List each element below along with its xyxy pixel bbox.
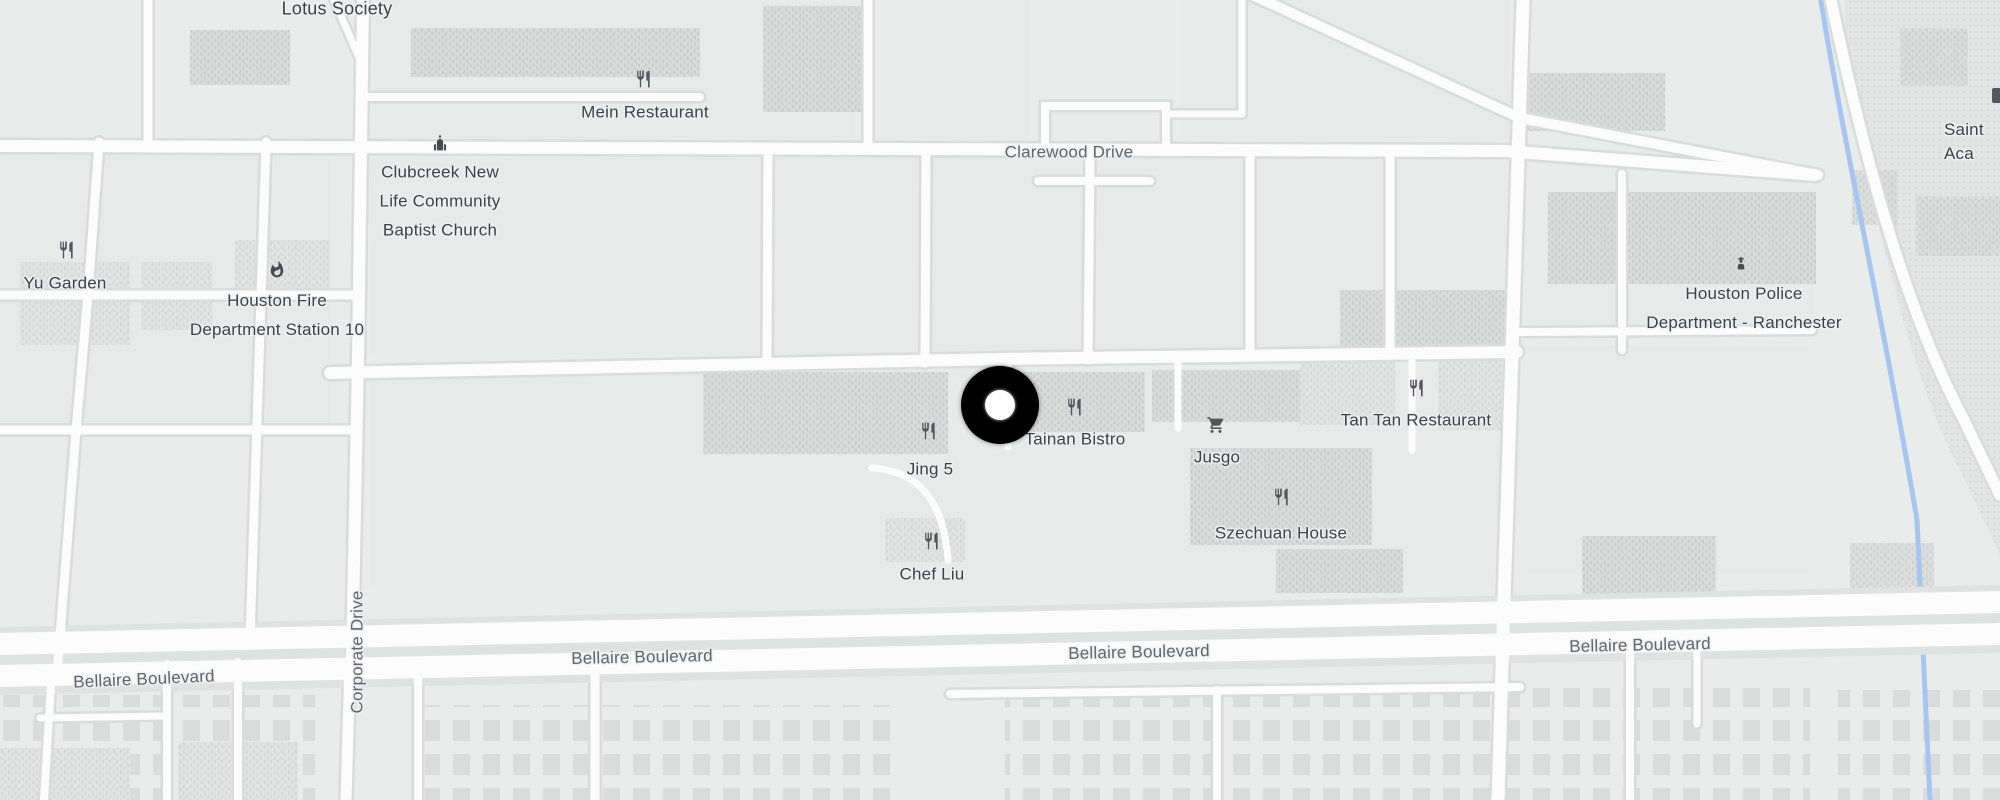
street-label-bellaire-boulevard: Bellaire Boulevard	[571, 641, 713, 673]
poi-label-clubcreek-baptist-church[interactable]: Clubcreek New Life Community Baptist Chu…	[380, 158, 501, 245]
restaurant-icon[interactable]	[918, 421, 938, 441]
poi-label-houston-police-ranchester[interactable]: Houston Police Department - Ranchester	[1646, 279, 1841, 337]
church-icon[interactable]	[429, 132, 451, 154]
cursor-marker-inner	[985, 390, 1015, 420]
police-icon[interactable]	[1732, 254, 1750, 272]
street-label-bellaire-boulevard: Bellaire Boulevard	[73, 661, 216, 696]
poi-label-yu-garden[interactable]: Yu Garden	[23, 269, 106, 298]
restaurant-icon[interactable]	[1406, 378, 1426, 398]
restaurant-icon[interactable]	[633, 69, 653, 89]
cart-icon[interactable]	[1207, 416, 1226, 435]
fire-icon[interactable]	[267, 260, 287, 280]
clipped-poi-icon	[1992, 88, 2000, 103]
poi-label-chef-liu[interactable]: Chef Liu	[900, 560, 965, 589]
poi-label-tan-tan-restaurant[interactable]: Tan Tan Restaurant	[1341, 406, 1492, 435]
street-label-clarewood-drive: Clarewood Drive	[1005, 138, 1134, 167]
street-label-corporate-drive: Corporate Drive	[343, 591, 372, 714]
restaurant-icon[interactable]	[56, 240, 76, 260]
poi-label-jing-5[interactable]: Jing 5	[907, 455, 954, 484]
poi-label-jusgo[interactable]: Jusgo	[1194, 443, 1240, 472]
poi-label-mein-restaurant[interactable]: Mein Restaurant	[581, 98, 709, 127]
poi-label-szechuan-house[interactable]: Szechuan House	[1215, 519, 1347, 548]
poi-label-houston-fire-station-10[interactable]: Houston Fire Department Station 10	[190, 286, 364, 344]
poi-label-tainan-bistro[interactable]: Tainan Bistro	[1025, 425, 1126, 454]
poi-label-lotus-society[interactable]: Lotus Society	[282, 0, 393, 24]
poi-label-saint-academy-clipped[interactable]: Saint Aca	[1944, 118, 1984, 166]
cursor-marker	[961, 366, 1039, 444]
street-label-bellaire-boulevard: Bellaire Boulevard	[1569, 629, 1711, 661]
restaurant-icon[interactable]	[1064, 397, 1084, 417]
street-label-bellaire-boulevard: Bellaire Boulevard	[1068, 636, 1210, 668]
restaurant-icon[interactable]	[921, 531, 941, 551]
map-canvas[interactable]: Lotus Society Mein Restaurant Clubcreek …	[0, 0, 2000, 800]
restaurant-icon[interactable]	[1271, 487, 1291, 507]
